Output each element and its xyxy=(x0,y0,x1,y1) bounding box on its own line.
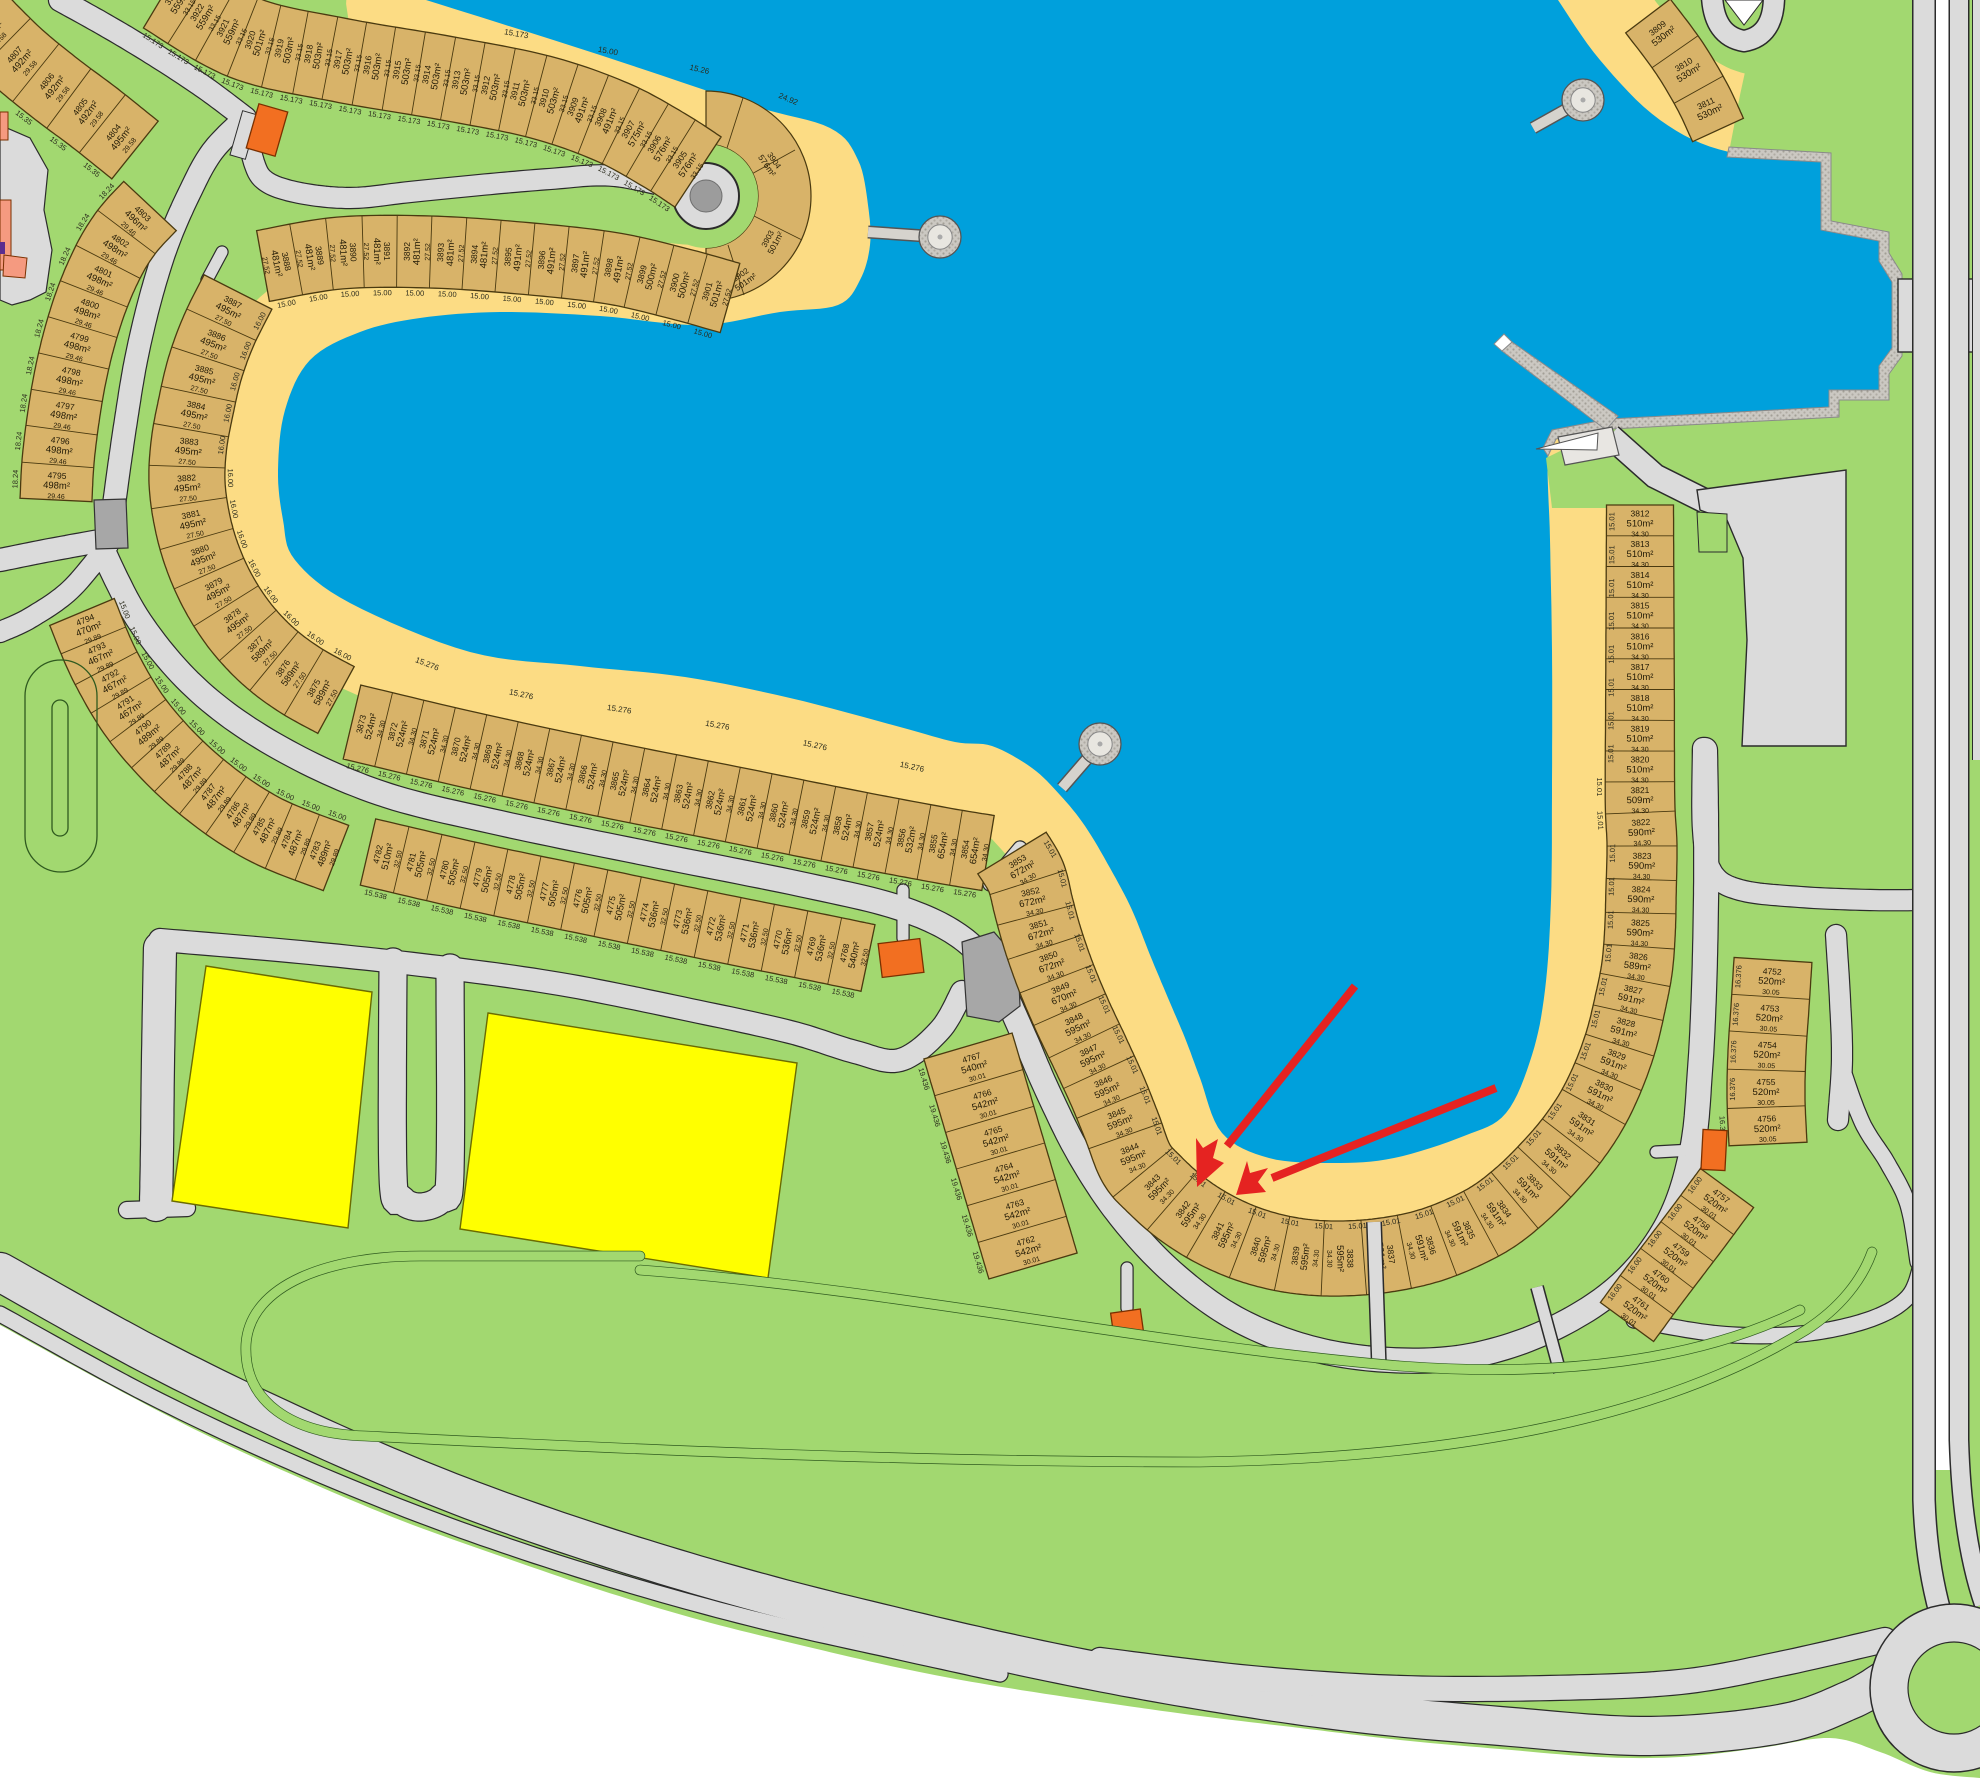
svg-text:15.00: 15.00 xyxy=(340,289,359,299)
svg-text:3819: 3819 xyxy=(1630,724,1649,734)
svg-text:27.52: 27.52 xyxy=(425,243,432,261)
svg-text:3817: 3817 xyxy=(1631,662,1650,672)
svg-text:15.01: 15.01 xyxy=(1603,943,1614,963)
svg-text:34.30: 34.30 xyxy=(1631,777,1649,784)
svg-text:34.30: 34.30 xyxy=(1325,1250,1332,1268)
svg-text:34.30: 34.30 xyxy=(1631,716,1649,723)
svg-text:34.30: 34.30 xyxy=(1631,747,1649,754)
svg-text:29.46: 29.46 xyxy=(47,493,65,501)
svg-text:3814: 3814 xyxy=(1631,570,1650,580)
svg-text:15.01: 15.01 xyxy=(1606,711,1615,730)
svg-text:3891: 3891 xyxy=(382,242,392,261)
svg-text:34.30: 34.30 xyxy=(1633,874,1651,881)
svg-text:15.01: 15.01 xyxy=(1607,579,1616,598)
svg-text:3820: 3820 xyxy=(1630,754,1649,764)
svg-text:3821: 3821 xyxy=(1630,785,1649,795)
svg-text:520m²: 520m² xyxy=(1754,1123,1781,1135)
svg-text:595m²: 595m² xyxy=(1334,1245,1346,1272)
svg-text:16.376: 16.376 xyxy=(1733,965,1743,988)
svg-text:3815: 3815 xyxy=(1631,601,1650,611)
svg-text:15.01: 15.01 xyxy=(1607,612,1616,631)
svg-text:34.30: 34.30 xyxy=(1631,624,1649,631)
svg-text:510m²: 510m² xyxy=(1626,734,1653,745)
svg-text:16.376: 16.376 xyxy=(1731,1003,1742,1027)
svg-text:481m²: 481m² xyxy=(337,239,349,266)
svg-text:34.30: 34.30 xyxy=(1631,562,1649,569)
svg-text:34.30: 34.30 xyxy=(1631,593,1649,600)
svg-text:15.01: 15.01 xyxy=(1607,545,1616,564)
svg-text:590m²: 590m² xyxy=(1628,826,1656,839)
svg-text:481m²: 481m² xyxy=(411,238,423,265)
svg-text:3824: 3824 xyxy=(1631,884,1650,894)
svg-text:15.01: 15.01 xyxy=(1607,645,1616,664)
svg-text:15.01: 15.01 xyxy=(1314,1221,1333,1231)
svg-text:510m²: 510m² xyxy=(1627,703,1654,714)
svg-text:34.30: 34.30 xyxy=(1633,840,1651,848)
svg-text:15.00: 15.00 xyxy=(405,288,424,297)
svg-text:510m²: 510m² xyxy=(1627,641,1654,652)
svg-text:30.05: 30.05 xyxy=(1757,1062,1775,1070)
svg-text:510m²: 510m² xyxy=(1627,611,1654,622)
svg-text:15.01: 15.01 xyxy=(1606,910,1616,929)
svg-text:34.30: 34.30 xyxy=(1632,907,1650,914)
svg-text:15.00: 15.00 xyxy=(438,289,457,299)
svg-text:3816: 3816 xyxy=(1631,631,1650,641)
svg-text:15.01: 15.01 xyxy=(1595,811,1605,830)
svg-text:27.52: 27.52 xyxy=(458,244,466,262)
svg-text:15.00: 15.00 xyxy=(535,296,555,307)
svg-text:510m²: 510m² xyxy=(1627,549,1654,560)
svg-text:15.01: 15.01 xyxy=(1607,877,1617,896)
svg-text:15.01: 15.01 xyxy=(1595,778,1604,797)
svg-text:3818: 3818 xyxy=(1631,693,1650,703)
svg-text:3838: 3838 xyxy=(1345,1249,1355,1268)
svg-text:510m²: 510m² xyxy=(1627,672,1654,683)
svg-text:27.52: 27.52 xyxy=(362,243,369,261)
svg-text:509m²: 509m² xyxy=(1627,795,1654,806)
svg-text:510m²: 510m² xyxy=(1626,764,1653,775)
svg-text:15.01: 15.01 xyxy=(1606,744,1615,763)
svg-text:510m²: 510m² xyxy=(1627,518,1654,529)
svg-text:15.00: 15.00 xyxy=(470,291,489,301)
svg-text:18.24: 18.24 xyxy=(10,469,20,488)
svg-text:34.30: 34.30 xyxy=(1631,685,1649,692)
svg-text:30.05: 30.05 xyxy=(1757,1100,1775,1107)
svg-text:34.30: 34.30 xyxy=(1631,654,1649,661)
svg-text:520m²: 520m² xyxy=(1753,1049,1780,1061)
svg-text:590m²: 590m² xyxy=(1626,927,1653,939)
svg-text:34.30: 34.30 xyxy=(1631,531,1649,538)
svg-text:16.376: 16.376 xyxy=(1728,1078,1737,1101)
svg-text:15.00: 15.00 xyxy=(502,294,521,305)
svg-text:27.52: 27.52 xyxy=(328,244,336,262)
svg-text:30.05: 30.05 xyxy=(1759,1026,1777,1034)
svg-text:481m²: 481m² xyxy=(371,238,382,265)
svg-text:495m²: 495m² xyxy=(174,482,202,495)
svg-text:481m²: 481m² xyxy=(478,241,491,269)
svg-text:15.01: 15.01 xyxy=(1607,678,1616,697)
svg-text:15.01: 15.01 xyxy=(1607,512,1616,531)
svg-text:27.52: 27.52 xyxy=(492,247,500,265)
svg-text:520m²: 520m² xyxy=(1753,1087,1780,1098)
svg-text:16.00: 16.00 xyxy=(226,468,235,487)
svg-text:27.50: 27.50 xyxy=(179,495,197,503)
svg-text:520m²: 520m² xyxy=(1758,976,1786,989)
svg-text:16.376: 16.376 xyxy=(1728,1040,1738,1063)
svg-text:510m²: 510m² xyxy=(1627,580,1654,591)
svg-text:4755: 4755 xyxy=(1757,1077,1776,1087)
svg-text:15.01: 15.01 xyxy=(1348,1221,1367,1231)
svg-text:3812: 3812 xyxy=(1631,508,1650,518)
svg-text:590m²: 590m² xyxy=(1627,894,1654,906)
svg-text:34.30: 34.30 xyxy=(1630,940,1648,948)
svg-text:3823: 3823 xyxy=(1632,851,1651,861)
svg-text:34.30: 34.30 xyxy=(1631,808,1649,815)
svg-text:3892: 3892 xyxy=(402,242,412,261)
svg-text:30.05: 30.05 xyxy=(1759,1136,1777,1144)
svg-text:3813: 3813 xyxy=(1631,539,1650,549)
svg-text:481m²: 481m² xyxy=(445,239,457,266)
svg-text:520m²: 520m² xyxy=(1755,1012,1783,1025)
svg-text:590m²: 590m² xyxy=(1628,860,1655,872)
svg-text:15.01: 15.01 xyxy=(1608,844,1617,863)
svg-text:15.00: 15.00 xyxy=(373,288,392,297)
svg-text:30.05: 30.05 xyxy=(1762,989,1780,997)
svg-text:498m²: 498m² xyxy=(43,480,70,492)
